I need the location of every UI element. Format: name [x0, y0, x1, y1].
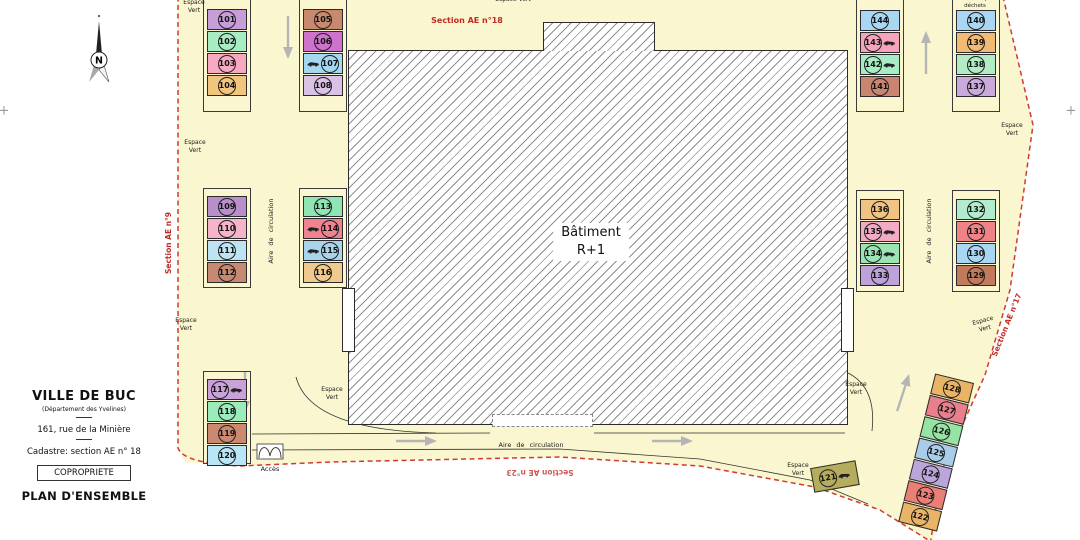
- espace-vert-label: EspaceVert: [183, 0, 204, 15]
- section-ae-23-label: Section AE n°23: [506, 467, 573, 477]
- title-divider: [76, 439, 92, 440]
- plan-title: PLAN D'ENSEMBLE: [8, 489, 160, 503]
- title-department: (Département des Yvelines): [8, 406, 160, 413]
- title-address: 161, rue de la Minière: [8, 425, 160, 435]
- title-city: VILLE DE BUC: [8, 389, 160, 404]
- aire-depot-dechets-label: Aire de dépôtdéchets: [956, 0, 993, 10]
- espace-vert-label: EspaceVert: [787, 462, 808, 478]
- espace-vert-label: EspaceVert: [321, 386, 342, 402]
- site-plan: N Bâtiment R+1 1011021031041051061071081…: [0, 0, 1080, 540]
- tenure-box: COPROPRIETE: [37, 465, 131, 481]
- espace-vert-label: EspaceVert: [175, 317, 196, 333]
- aire-de-circulation-label: Aire de circulation: [267, 199, 275, 264]
- section-ae-9-label: Section AE n°9: [164, 212, 174, 274]
- espace-vert-label: EspaceVert: [1001, 122, 1022, 138]
- title-cadastre: Cadastre: section AE n° 18: [8, 447, 160, 457]
- register-cross: +: [1066, 104, 1077, 121]
- espace-vert-label: Espace Vert: [495, 0, 530, 4]
- espace-vert-label: EspaceVert: [972, 315, 997, 336]
- espace-vert-label: EspaceVert: [184, 139, 205, 155]
- aire-de-circulation-label: Aire de circulation: [499, 441, 564, 449]
- section-ae-18-label: Section AE n°18: [431, 16, 503, 26]
- acces-label: Accès: [261, 465, 280, 473]
- title-block: VILLE DE BUC (Département des Yvelines) …: [8, 389, 160, 503]
- plan-labels: EspaceVertEspace VertEspaceVertEspaceVer…: [0, 0, 1080, 540]
- register-cross: +: [0, 104, 9, 121]
- aire-de-circulation-label: Aire de circulation: [925, 199, 933, 264]
- title-divider: [76, 417, 92, 418]
- espace-vert-label: EspaceVert: [845, 381, 866, 397]
